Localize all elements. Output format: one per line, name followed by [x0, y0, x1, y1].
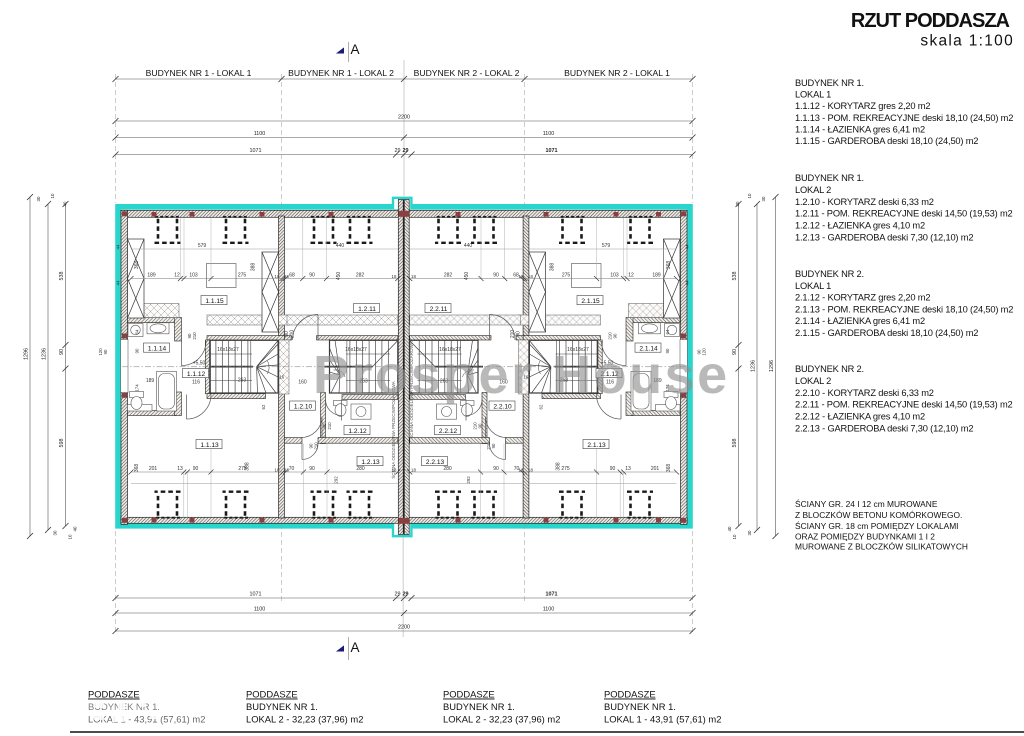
- svg-text:LOKAL 2: LOKAL 2: [795, 376, 831, 386]
- svg-text:90: 90: [193, 466, 199, 472]
- svg-text:40: 40: [73, 526, 78, 531]
- svg-text:62: 62: [261, 404, 266, 409]
- svg-text:210: 210: [327, 422, 332, 430]
- svg-text:2.2.13 - GARDEROBA deski 7,30: 2.2.13 - GARDEROBA deski 7,30 (12,10) m2: [795, 424, 973, 434]
- svg-text:MUROWANE Z BLOCZKÓW SILIKATOWY: MUROWANE Z BLOCZKÓW SILIKATOWYCH: [795, 542, 968, 552]
- svg-text:1071: 1071: [250, 592, 262, 598]
- svg-text:BUDYNEK NR 1 - LOKAL 2: BUDYNEK NR 1 - LOKAL 2: [288, 68, 394, 78]
- svg-text:68: 68: [289, 273, 295, 279]
- svg-text:BUDYNEK NR 1.: BUDYNEK NR 1.: [604, 701, 676, 712]
- svg-text:PODDASZE: PODDASZE: [88, 689, 140, 700]
- svg-text:189: 189: [652, 273, 661, 279]
- svg-text:90: 90: [493, 273, 499, 279]
- svg-text:70: 70: [514, 466, 520, 472]
- svg-text:579: 579: [602, 243, 611, 249]
- svg-text:30: 30: [36, 196, 41, 201]
- svg-text:1071: 1071: [250, 148, 262, 154]
- svg-text:30: 30: [761, 196, 766, 201]
- svg-text:2200: 2200: [398, 625, 410, 631]
- svg-text:40: 40: [727, 526, 732, 531]
- svg-text:1.1.13 - POM. REKREACYJNE desk: 1.1.13 - POM. REKREACYJNE deski 18,10 (2…: [795, 113, 1013, 123]
- svg-text:1071: 1071: [546, 592, 558, 598]
- svg-text:LOKAL 1 - 43,91 (57,61) m2: LOKAL 1 - 43,91 (57,61) m2: [88, 714, 205, 725]
- svg-text:PODDASZE: PODDASZE: [246, 689, 298, 700]
- svg-text:A: A: [351, 640, 360, 655]
- svg-text:18: 18: [519, 274, 524, 279]
- svg-text:116: 116: [192, 380, 200, 386]
- svg-text:skala 1:100: skala 1:100: [920, 33, 1014, 50]
- svg-text:189: 189: [147, 273, 156, 279]
- svg-text:1.2.12 - ŁAZIENKA gres 4,10 m2: 1.2.12 - ŁAZIENKA gres 4,10 m2: [795, 221, 925, 231]
- svg-text:450: 450: [336, 272, 342, 281]
- svg-text:368: 368: [666, 464, 672, 473]
- svg-text:210: 210: [510, 330, 516, 339]
- svg-text:29: 29: [395, 148, 401, 154]
- svg-text:1100: 1100: [543, 131, 555, 137]
- svg-text:1.2.11: 1.2.11: [358, 306, 376, 313]
- svg-text:280: 280: [356, 466, 365, 472]
- svg-text:1.1.14 - ŁAZIENKA gres 6,41 m2: 1.1.14 - ŁAZIENKA gres 6,41 m2: [795, 124, 925, 134]
- svg-text:440: 440: [336, 243, 345, 249]
- svg-text:90: 90: [610, 466, 616, 472]
- svg-text:292: 292: [334, 476, 339, 484]
- svg-text:2.2.12 - ŁAZIENKA gres 4,10 m2: 2.2.12 - ŁAZIENKA gres 4,10 m2: [795, 412, 925, 422]
- svg-text:2.1.15 - GARDEROBA deski 18,10: 2.1.15 - GARDEROBA deski 18,10 (24,50) m…: [795, 328, 978, 338]
- svg-text:275: 275: [238, 273, 247, 279]
- svg-text:ORAZ POMIĘDZY BUDYNKAMI 1 I 2: ORAZ POMIĘDZY BUDYNKAMI 1 I 2: [795, 531, 935, 541]
- svg-text:1100: 1100: [543, 607, 555, 613]
- svg-text:90: 90: [613, 333, 618, 338]
- svg-text:210: 210: [192, 332, 197, 340]
- svg-text:BUDYNEK NR 1.: BUDYNEK NR 1.: [795, 78, 864, 88]
- svg-text:44: 44: [685, 244, 690, 249]
- svg-text:10: 10: [747, 193, 752, 198]
- svg-text:90: 90: [309, 273, 315, 279]
- svg-text:18: 18: [519, 467, 524, 472]
- svg-text:2.2.10 - KORYTARZ deski 6,33 m: 2.2.10 - KORYTARZ deski 6,33 m2: [795, 388, 934, 398]
- svg-text:1.2.10 - KORYTARZ deski 6,33 m: 1.2.10 - KORYTARZ deski 6,33 m2: [795, 197, 934, 207]
- svg-text:1296: 1296: [24, 348, 30, 360]
- svg-text:30: 30: [747, 530, 752, 535]
- svg-text:90: 90: [309, 466, 315, 472]
- svg-text:+5,50: +5,50: [193, 361, 206, 367]
- svg-text:90: 90: [478, 423, 483, 428]
- svg-text:44: 44: [116, 280, 121, 285]
- svg-text:LOKAL 2: LOKAL 2: [795, 185, 831, 195]
- svg-text:2.2.11: 2.2.11: [430, 306, 448, 313]
- svg-text:2.1.14 - ŁAZIENKA gres 6,41 m2: 2.1.14 - ŁAZIENKA gres 6,41 m2: [795, 316, 925, 326]
- svg-text:30: 30: [53, 530, 58, 535]
- svg-text:18: 18: [528, 274, 533, 279]
- svg-text:280: 280: [443, 466, 452, 472]
- svg-text:LOKAL 2 - 32,23 (37,96) m2: LOKAL 2 - 32,23 (37,96) m2: [443, 714, 560, 725]
- svg-text:90: 90: [493, 466, 499, 472]
- svg-text:18: 18: [411, 274, 416, 279]
- svg-text:388: 388: [556, 462, 562, 471]
- svg-text:201: 201: [149, 466, 158, 472]
- svg-text:292: 292: [466, 476, 471, 484]
- svg-text:Z BLOCZKÓW BETONU KOMÓRKOWEGO.: Z BLOCZKÓW BETONU KOMÓRKOWEGO.: [795, 510, 962, 520]
- svg-text:LOKAL 2 - 32,23 (37,96) m2: LOKAL 2 - 32,23 (37,96) m2: [246, 714, 363, 725]
- svg-text:70: 70: [289, 466, 295, 472]
- svg-text:PODDASZE: PODDASZE: [604, 689, 656, 700]
- svg-text:2200: 2200: [398, 115, 410, 121]
- svg-text:18: 18: [528, 467, 533, 472]
- svg-text:LOKAL 1 - 43,91 (57,61) m2: LOKAL 1 - 43,91 (57,61) m2: [604, 714, 721, 725]
- svg-text:282: 282: [356, 273, 365, 279]
- svg-text:275: 275: [561, 466, 570, 472]
- svg-text:90: 90: [103, 349, 108, 354]
- svg-text:BUDYNEK NR 2.: BUDYNEK NR 2.: [795, 364, 864, 374]
- svg-text:40: 40: [63, 201, 68, 206]
- svg-text:2.1.12 - KORYTARZ gres 2,20 m2: 2.1.12 - KORYTARZ gres 2,20 m2: [795, 293, 930, 303]
- svg-text:174: 174: [135, 384, 140, 392]
- svg-text:450: 450: [464, 272, 470, 281]
- svg-text:90: 90: [59, 349, 65, 355]
- svg-text:RZUT PODDASZA: RZUT PODDASZA: [851, 10, 1010, 32]
- svg-text:13: 13: [177, 466, 183, 472]
- svg-text:10: 10: [50, 193, 55, 198]
- svg-text:210: 210: [608, 332, 613, 340]
- svg-text:29: 29: [403, 592, 409, 598]
- svg-text:LOKAL 1: LOKAL 1: [795, 90, 831, 100]
- svg-text:1100: 1100: [254, 607, 266, 613]
- svg-text:598: 598: [59, 439, 65, 448]
- svg-text:1.1.14: 1.1.14: [148, 346, 167, 353]
- svg-text:68: 68: [513, 273, 519, 279]
- svg-text:BUDYNEK NR 2.: BUDYNEK NR 2.: [795, 269, 864, 279]
- svg-text:1236: 1236: [42, 348, 48, 360]
- svg-text:12: 12: [174, 273, 180, 279]
- svg-text:263: 263: [238, 378, 247, 384]
- svg-text:579: 579: [198, 243, 207, 249]
- svg-text:PODDASZE: PODDASZE: [443, 689, 495, 700]
- svg-text:1.1.15 - GARDEROBA deski 18,10: 1.1.15 - GARDEROBA deski 18,10 (24,50) m…: [795, 136, 978, 146]
- svg-text:275: 275: [562, 273, 571, 279]
- svg-text:40: 40: [735, 201, 740, 206]
- svg-text:LOKAL 1: LOKAL 1: [795, 281, 831, 291]
- svg-text:10: 10: [68, 534, 73, 539]
- svg-text:2.1.13: 2.1.13: [587, 442, 606, 449]
- svg-text:201: 201: [651, 466, 660, 472]
- svg-text:2.1.15: 2.1.15: [581, 298, 600, 305]
- svg-text:1.1.12: 1.1.12: [187, 371, 206, 378]
- svg-text:90: 90: [491, 443, 496, 448]
- svg-text:1071: 1071: [546, 148, 558, 154]
- svg-text:1236: 1236: [751, 360, 757, 372]
- svg-text:64: 64: [135, 329, 140, 334]
- svg-text:ŚCIANY GR. 24 I 12 cm MUROWANE: ŚCIANY GR. 24 I 12 cm MUROWANE: [795, 498, 938, 509]
- svg-text:1.2.12: 1.2.12: [348, 428, 367, 435]
- svg-text:368: 368: [666, 261, 672, 270]
- svg-text:282: 282: [444, 273, 453, 279]
- svg-text:A: A: [351, 42, 360, 57]
- svg-text:12: 12: [628, 273, 634, 279]
- svg-text:2.1.13 - POM. REKREACYJNE desk: 2.1.13 - POM. REKREACYJNE deski 18,10 (2…: [795, 304, 1013, 314]
- svg-text:388: 388: [550, 263, 556, 272]
- svg-text:538: 538: [732, 272, 738, 281]
- svg-text:44: 44: [116, 244, 121, 249]
- svg-text:598: 598: [732, 439, 738, 448]
- svg-text:160: 160: [298, 380, 307, 386]
- svg-text:538: 538: [59, 272, 65, 281]
- svg-text:18: 18: [411, 467, 416, 472]
- svg-text:90: 90: [732, 349, 738, 355]
- svg-text:BUDYNEK NR 2 - LOKAL 1: BUDYNEK NR 2 - LOKAL 1: [564, 68, 670, 78]
- svg-text:103: 103: [189, 273, 198, 279]
- svg-text:1100: 1100: [254, 131, 266, 137]
- svg-text:1296: 1296: [769, 360, 775, 372]
- svg-text:1.2.13 - GARDEROBA deski 7,30: 1.2.13 - GARDEROBA deski 7,30 (12,10) m2: [795, 233, 973, 243]
- svg-text:64: 64: [665, 329, 670, 334]
- svg-text:29: 29: [403, 148, 409, 154]
- svg-text:18: 18: [392, 274, 397, 279]
- svg-text:1.1.13: 1.1.13: [200, 442, 219, 449]
- svg-text:BUDYNEK NR 1 - LOKAL 1: BUDYNEK NR 1 - LOKAL 1: [146, 68, 252, 78]
- svg-text:90: 90: [135, 348, 140, 353]
- svg-text:29: 29: [395, 592, 401, 598]
- svg-text:18: 18: [275, 274, 280, 279]
- svg-text:BUDYNEK NR 2 - LOKAL 2: BUDYNEK NR 2 - LOKAL 2: [414, 68, 520, 78]
- svg-text:16: 16: [279, 375, 284, 380]
- svg-text:90: 90: [516, 331, 522, 337]
- svg-text:2.2.12: 2.2.12: [439, 428, 458, 435]
- svg-text:1.2.11 - POM. REKREACYJNE desk: 1.2.11 - POM. REKREACYJNE deski 14,50 (1…: [795, 209, 1013, 219]
- svg-text:368: 368: [134, 464, 140, 473]
- svg-text:210: 210: [486, 442, 491, 450]
- svg-text:388: 388: [251, 263, 257, 272]
- svg-text:210: 210: [290, 330, 296, 339]
- svg-text:13: 13: [625, 466, 631, 472]
- svg-text:Prosper House: Prosper House: [313, 345, 730, 405]
- svg-text:BUDYNEK NR 1.: BUDYNEK NR 1.: [443, 701, 515, 712]
- svg-text:18: 18: [275, 467, 280, 472]
- svg-text:368: 368: [134, 261, 140, 270]
- svg-text:2.2.13: 2.2.13: [426, 459, 445, 466]
- svg-text:1.1.15: 1.1.15: [205, 298, 224, 305]
- svg-text:ŚCIANY GR. 18 cm POMIĘDZY LOKA: ŚCIANY GR. 18 cm POMIĘDZY LOKALAMI: [795, 520, 959, 531]
- svg-text:2.2.11 - POM. REKREACYJNE desk: 2.2.11 - POM. REKREACYJNE deski 14,50 (1…: [795, 400, 1013, 410]
- svg-text:388: 388: [245, 462, 251, 471]
- svg-text:189: 189: [146, 378, 155, 384]
- svg-text:120: 120: [98, 348, 103, 356]
- svg-text:1.2.10: 1.2.10: [294, 404, 313, 411]
- svg-text:16x18x27: 16x18x27: [217, 347, 239, 353]
- svg-text:44: 44: [685, 280, 690, 285]
- svg-text:BUDYNEK NR 1.: BUDYNEK NR 1.: [246, 701, 318, 712]
- svg-text:210: 210: [314, 442, 319, 450]
- svg-text:1.1.12 - KORYTARZ gres 2,20 m2: 1.1.12 - KORYTARZ gres 2,20 m2: [795, 101, 930, 111]
- svg-text:BUDYNEK NR 1.: BUDYNEK NR 1.: [795, 173, 864, 183]
- svg-text:440: 440: [464, 243, 473, 249]
- svg-text:10: 10: [732, 534, 737, 539]
- svg-text:103: 103: [610, 273, 619, 279]
- svg-text:210: 210: [473, 422, 478, 430]
